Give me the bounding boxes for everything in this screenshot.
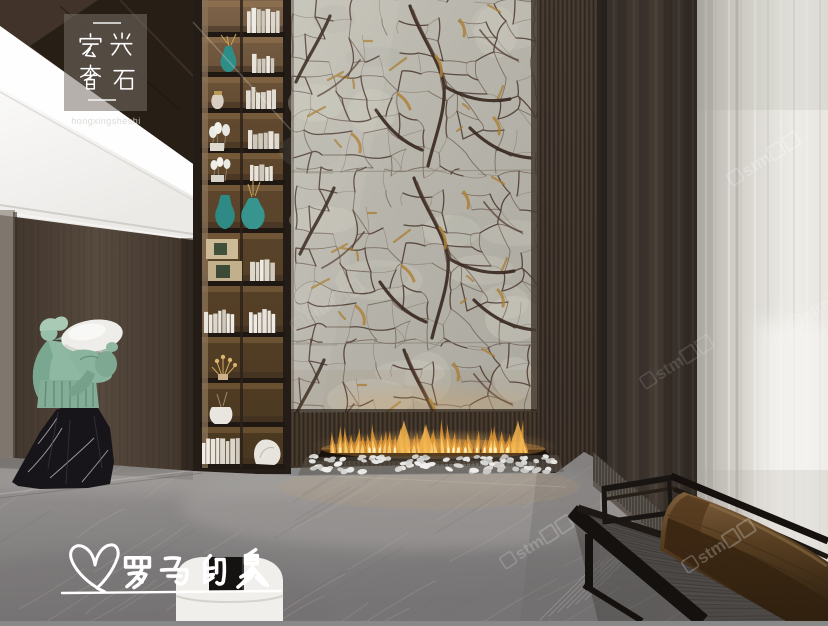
- svg-text:hongxingsheshi: hongxingsheshi: [71, 116, 141, 126]
